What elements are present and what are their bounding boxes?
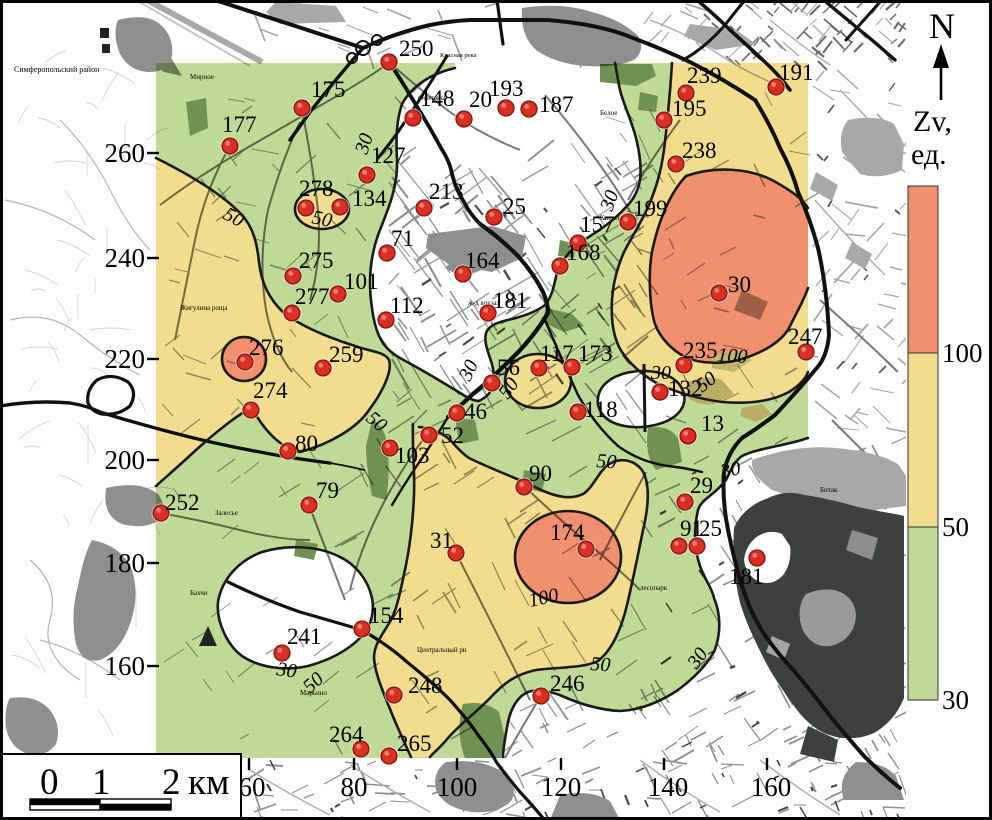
- svg-text:25: 25: [503, 194, 526, 219]
- svg-text:30: 30: [728, 272, 751, 297]
- svg-text:127: 127: [371, 143, 406, 168]
- svg-text:0: 0: [40, 762, 59, 803]
- svg-text:132: 132: [668, 376, 703, 401]
- svg-text:213: 213: [429, 179, 464, 204]
- svg-text:79: 79: [316, 478, 339, 503]
- svg-text:N: N: [929, 6, 955, 46]
- svg-text:181: 181: [493, 288, 528, 313]
- svg-text:90: 90: [529, 461, 552, 486]
- svg-text:278: 278: [299, 176, 334, 201]
- svg-text:276: 276: [249, 335, 284, 360]
- svg-text:277: 277: [295, 284, 330, 309]
- svg-text:235: 235: [683, 338, 718, 363]
- svg-text:164: 164: [465, 248, 500, 273]
- svg-text:241: 241: [287, 624, 322, 649]
- svg-text:240: 240: [105, 243, 146, 273]
- svg-text:265: 265: [397, 731, 432, 756]
- svg-text:30: 30: [942, 685, 969, 715]
- svg-text:252: 252: [165, 490, 200, 515]
- svg-text:274: 274: [253, 378, 288, 403]
- svg-text:71: 71: [391, 226, 414, 251]
- svg-text:46: 46: [464, 399, 487, 424]
- svg-text:173: 173: [578, 341, 613, 366]
- svg-text:160: 160: [751, 772, 792, 802]
- svg-text:118: 118: [584, 397, 618, 422]
- svg-text:Zv,: Zv,: [913, 105, 952, 138]
- svg-text:248: 248: [408, 673, 443, 698]
- svg-text:191: 191: [779, 60, 814, 85]
- svg-text:175: 175: [311, 77, 346, 102]
- svg-text:50: 50: [590, 653, 611, 676]
- svg-text:193: 193: [489, 76, 524, 101]
- svg-text:246: 246: [550, 671, 585, 696]
- svg-text:112: 112: [390, 293, 424, 318]
- svg-text:247: 247: [788, 324, 823, 349]
- svg-text:60: 60: [239, 772, 266, 802]
- svg-text:140: 140: [648, 772, 689, 802]
- svg-text:100: 100: [942, 338, 983, 368]
- svg-text:30: 30: [274, 658, 298, 683]
- svg-text:187: 187: [539, 92, 574, 117]
- svg-text:154: 154: [369, 603, 404, 628]
- svg-text:101: 101: [344, 269, 379, 294]
- svg-text:80: 80: [341, 772, 368, 802]
- svg-text:ед.: ед.: [911, 138, 947, 171]
- svg-text:км: км: [188, 762, 229, 803]
- svg-text:100: 100: [437, 772, 478, 802]
- svg-text:Красная река: Красная река: [440, 52, 477, 59]
- svg-text:31: 31: [430, 528, 453, 553]
- svg-text:238: 238: [682, 138, 717, 163]
- svg-text:Симферопольский район: Симферопольский район: [14, 65, 100, 74]
- svg-text:50: 50: [942, 512, 969, 542]
- svg-text:157: 157: [580, 212, 615, 237]
- svg-text:177: 177: [222, 112, 257, 137]
- svg-text:29: 29: [690, 473, 713, 498]
- svg-text:180: 180: [105, 548, 146, 578]
- svg-text:100: 100: [717, 344, 748, 368]
- svg-text:Битак: Битак: [820, 486, 838, 494]
- svg-text:148: 148: [420, 86, 455, 111]
- svg-text:2: 2: [162, 762, 181, 803]
- svg-text:30: 30: [717, 457, 742, 483]
- svg-text:250: 250: [399, 36, 434, 61]
- svg-text:134: 134: [352, 186, 387, 211]
- svg-text:13: 13: [701, 411, 724, 436]
- svg-text:264: 264: [329, 722, 364, 747]
- svg-text:260: 260: [105, 138, 146, 168]
- svg-text:200: 200: [105, 445, 146, 475]
- svg-text:220: 220: [105, 344, 146, 374]
- svg-text:56: 56: [497, 355, 520, 380]
- svg-text:174: 174: [550, 520, 585, 545]
- svg-text:168: 168: [566, 240, 601, 265]
- svg-text:275: 275: [299, 248, 334, 273]
- svg-text:52: 52: [441, 423, 464, 448]
- svg-text:1: 1: [92, 762, 111, 803]
- svg-text:25: 25: [699, 516, 722, 541]
- svg-text:80: 80: [295, 431, 318, 456]
- svg-text:239: 239: [687, 63, 722, 88]
- svg-text:120: 120: [541, 772, 582, 802]
- svg-text:195: 195: [672, 96, 707, 121]
- svg-text:160: 160: [105, 651, 146, 681]
- svg-text:50: 50: [596, 450, 617, 473]
- svg-text:181: 181: [729, 564, 764, 589]
- svg-text:199: 199: [633, 196, 668, 221]
- svg-text:103: 103: [395, 443, 430, 468]
- svg-text:259: 259: [329, 342, 364, 367]
